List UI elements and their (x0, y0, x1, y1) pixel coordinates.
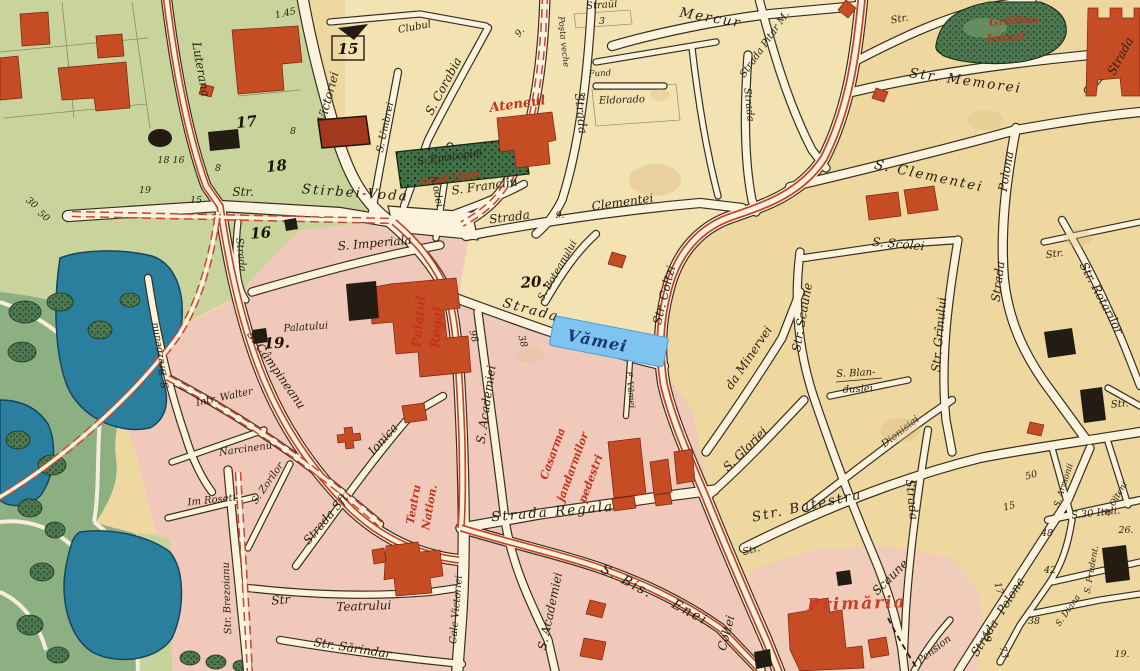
building-casarma (608, 438, 646, 498)
number-42: 42 (1043, 565, 1056, 576)
number-18: 18 (265, 156, 288, 176)
number-9a: 9. (555, 210, 564, 221)
map-viewport[interactable]: Vămei Luterana Victoriei Clubul S. Umbre… (0, 0, 1140, 671)
number-20: 20. (519, 272, 547, 292)
street-label-str-1120: Str. (1110, 398, 1129, 411)
map-canvas[interactable]: Vămei Luterana Victoriei Clubul S. Umbre… (0, 0, 1140, 671)
number-1816: 18 16 (157, 155, 184, 166)
number-17: 17 (235, 112, 258, 132)
number-8b: 8 (290, 126, 296, 137)
number-19a: 19 (139, 185, 151, 196)
street-label-str-prefix: Str. (232, 185, 253, 199)
street-label-fund: Fund (588, 68, 612, 79)
number-15a: 15 (190, 195, 202, 206)
number-19b: 19. (1114, 649, 1129, 660)
street-label-eldorado: Eldorado (598, 94, 645, 107)
street-label-str-teatr: Str (271, 592, 292, 607)
street-label-blan-1: S. Blan- (836, 367, 876, 380)
number-8a: 8 (215, 163, 221, 174)
number-2a: 2 (579, 92, 586, 103)
number-3: 3 (599, 16, 605, 27)
number-26: 26. (1117, 525, 1133, 536)
number-48: 48 (1040, 528, 1053, 539)
label-gradina-2: Icônei (985, 30, 1025, 46)
number-15-box: 15 (338, 40, 359, 58)
street-label-teatrului: Teatrului (336, 598, 392, 614)
label-primaria: Primăria (806, 592, 907, 616)
number-38b: 38 (1028, 616, 1040, 627)
street-label-blan-2: dusiei (842, 383, 873, 396)
number-16: 16 (250, 223, 273, 242)
number-19: 19. (263, 333, 290, 352)
